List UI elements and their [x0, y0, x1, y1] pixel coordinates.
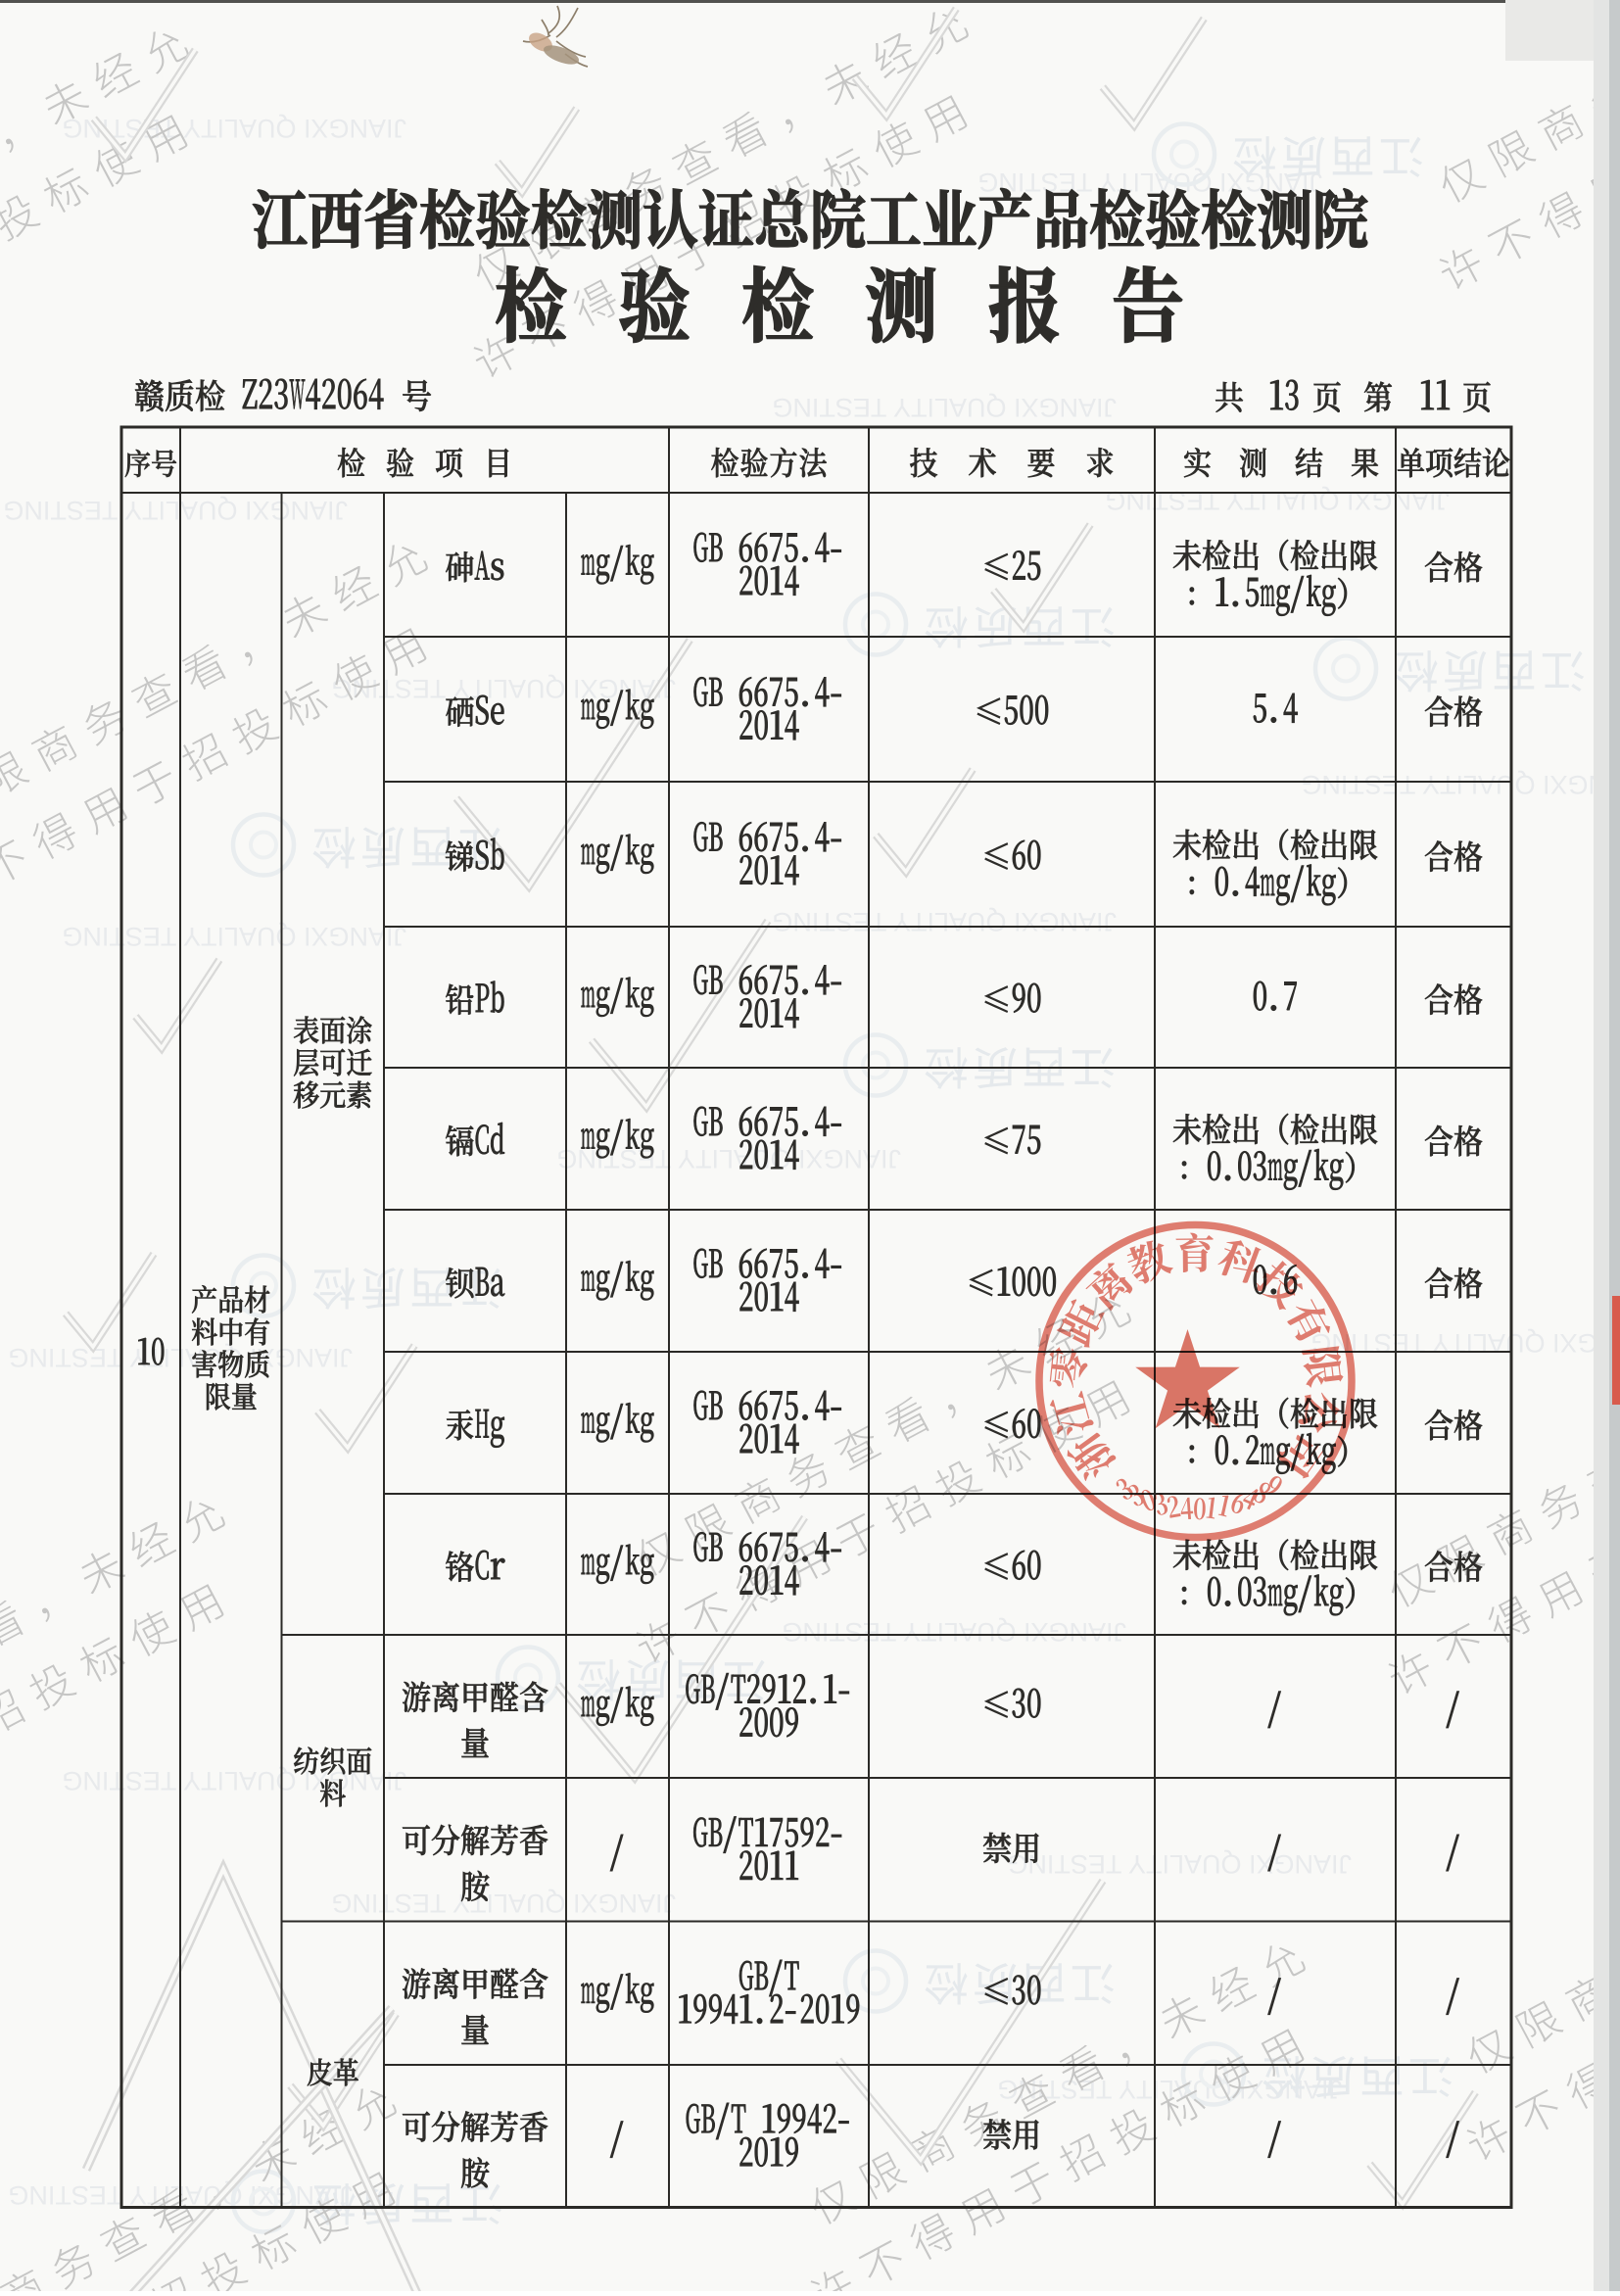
svg-text:JIANGXI QUALITY TESTING: JIANGXI QUALITY TESTING: [782, 1617, 1126, 1647]
svg-text:JIANGXI QUALITY TESTING: JIANGXI QUALITY TESTING: [1105, 486, 1450, 515]
svg-text:JIANGXI QUALITY TESTING: JIANGXI QUALITY TESTING: [772, 907, 1117, 936]
svg-text:JIANGXI QUALITY TESTING: JIANGXI QUALITY TESTING: [62, 922, 406, 951]
svg-text:JIANGXI QUALITY TESTING: JIANGXI QUALITY TESTING: [1007, 1849, 1352, 1879]
svg-text:JIANGXI QUALITY TESTING: JIANGXI QUALITY TESTING: [3, 496, 348, 525]
svg-text:JIANGXI QUALITY TESTING: JIANGXI QUALITY TESTING: [1301, 770, 1620, 799]
svg-text:JIANGXI QUALITY TESTING: JIANGXI QUALITY TESTING: [772, 393, 1117, 422]
svg-text:JIANGXI QUALITY TESTING: JIANGXI QUALITY TESTING: [1310, 1328, 1620, 1358]
